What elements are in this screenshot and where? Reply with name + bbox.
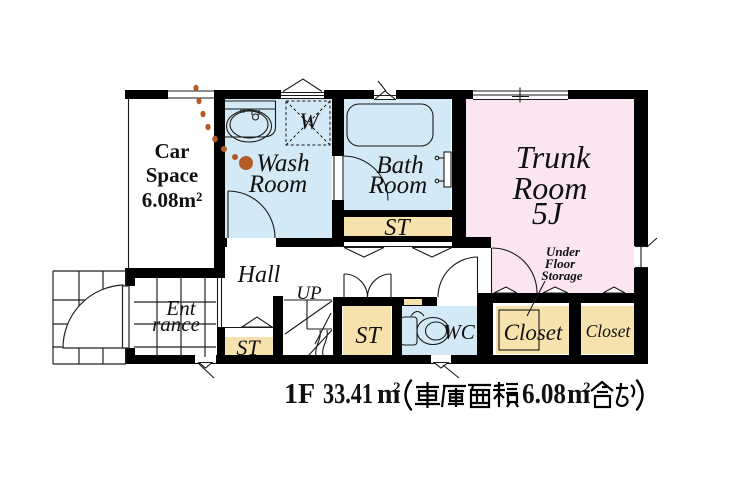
svg-text:Closet: Closet (504, 320, 563, 345)
svg-text:6.08: 6.08 (522, 379, 566, 410)
svg-text:UP: UP (296, 283, 322, 304)
svg-text:Closet: Closet (586, 321, 632, 341)
svg-text:Room: Room (368, 172, 427, 199)
svg-text:2: 2 (393, 380, 401, 396)
svg-text:Hall: Hall (237, 262, 281, 288)
svg-text:Car: Car (155, 139, 190, 163)
svg-text:6.08m²: 6.08m² (142, 188, 203, 212)
svg-text:WC: WC (443, 320, 475, 344)
svg-text:Space: Space (146, 163, 199, 187)
svg-text:2: 2 (583, 380, 591, 396)
svg-text:5J: 5J (532, 195, 564, 231)
svg-text:Room: Room (248, 171, 307, 198)
svg-text:Storage: Storage (541, 268, 582, 283)
svg-text:ST: ST (355, 323, 382, 349)
svg-text:W: W (299, 109, 320, 134)
svg-text:33.41: 33.41 (323, 379, 373, 410)
svg-text:rance: rance (152, 312, 200, 336)
svg-text:ST: ST (384, 215, 411, 241)
svg-text:1F: 1F (284, 379, 315, 410)
svg-text:ST: ST (236, 335, 261, 360)
